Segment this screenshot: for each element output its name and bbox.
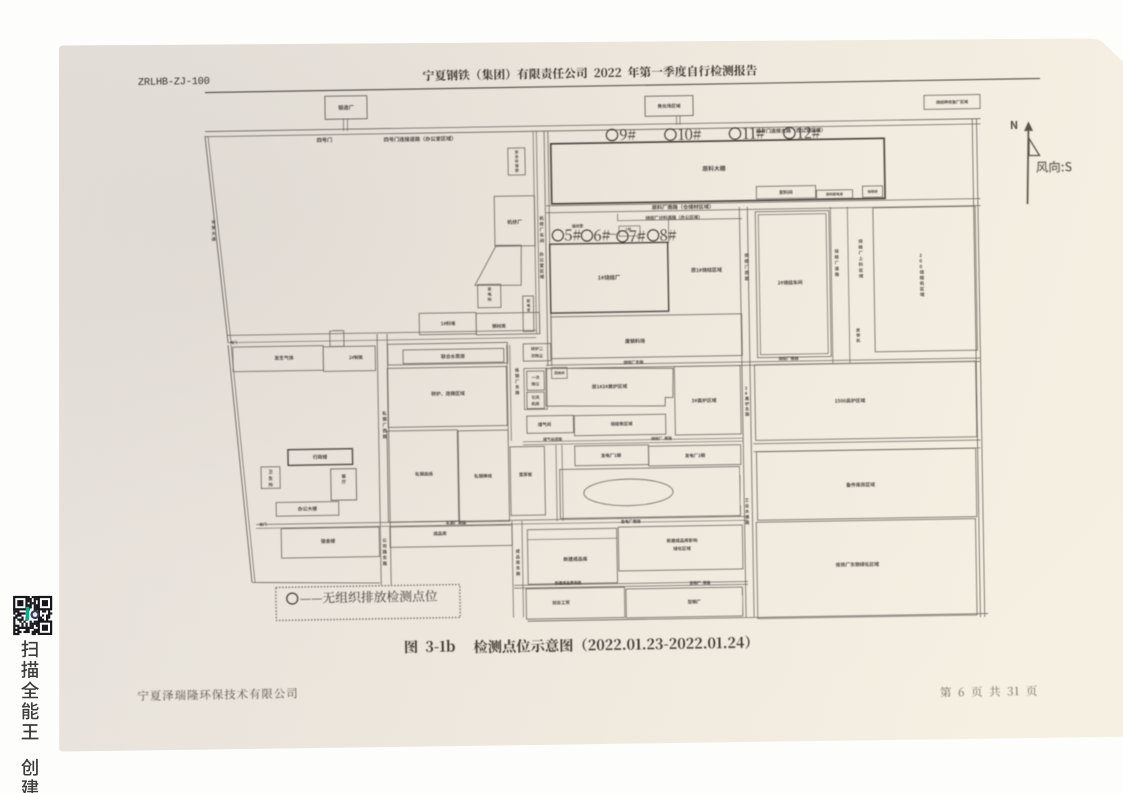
svg-text:ZRLHB-ZJ-100: ZRLHB-ZJ-100 <box>138 76 210 89</box>
